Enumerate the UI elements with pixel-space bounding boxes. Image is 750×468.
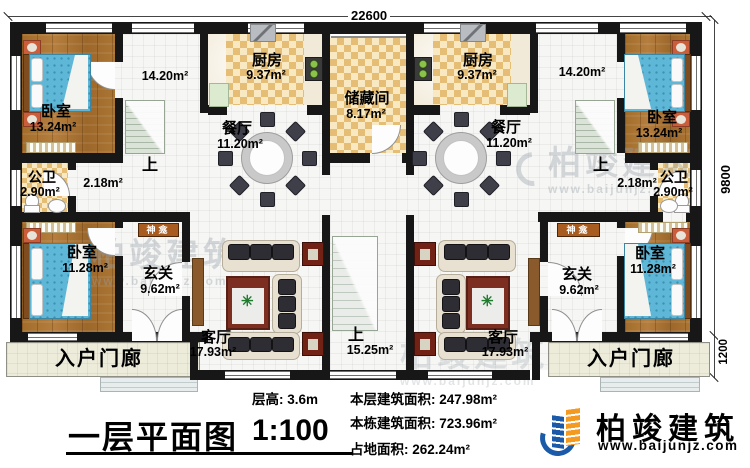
wall	[68, 196, 76, 212]
room-name-bedroom-bl: 卧室	[67, 245, 97, 262]
bedside-mat	[672, 40, 690, 55]
sofa-cushion	[488, 244, 510, 260]
wall	[322, 153, 370, 163]
room-name-bedroom-tr: 卧室	[647, 110, 677, 127]
wall	[406, 215, 414, 380]
wall	[68, 163, 76, 170]
room-name-bath-r: 公卫	[660, 170, 688, 185]
plant: ✳	[241, 294, 254, 309]
window	[330, 371, 396, 379]
wall	[307, 105, 330, 115]
tv-cabinet	[528, 258, 540, 326]
floor-height-label: 层高: 3.6m	[252, 388, 318, 408]
room-area-bath-l: 2.90m²	[20, 186, 60, 200]
window-seat-hatch	[638, 142, 688, 153]
toilet-tank	[24, 205, 40, 213]
sofa-cushion	[444, 244, 466, 260]
room-area-bedroom-tr: 13.24m²	[636, 127, 683, 141]
sofa-cushion	[272, 244, 294, 260]
dining-chair	[218, 151, 233, 166]
room-area-bedroom-tl: 13.24m²	[30, 121, 77, 135]
bed-pillow	[31, 284, 43, 316]
wall	[650, 163, 658, 170]
brand-website: www.baijunjz.com	[598, 438, 739, 453]
room-area-hall-l: 2.18m²	[83, 177, 123, 191]
end-table	[302, 332, 324, 356]
bedside-mat	[23, 40, 41, 55]
sofa-cushion	[442, 279, 460, 295]
room-area-bath-r: 2.90m²	[653, 186, 693, 200]
bed-pillow	[671, 284, 683, 316]
window	[28, 333, 77, 341]
stairs-left-unit	[125, 100, 165, 154]
window	[11, 246, 21, 318]
wall	[182, 296, 190, 342]
room-area-kitchen-r: 9.37m²	[457, 69, 497, 83]
sink	[660, 199, 678, 213]
dining-chair	[260, 192, 275, 207]
wall	[182, 222, 190, 262]
room-name-foyer-r: 玄关	[562, 267, 592, 284]
drawing-scale: 1:100	[252, 414, 329, 448]
window	[620, 23, 686, 33]
end-table	[414, 332, 436, 356]
window	[132, 23, 194, 33]
window	[46, 23, 112, 33]
entry-steps-right	[600, 377, 700, 392]
floor-plan-page: { "dimensions": { "top": "22600", "right…	[0, 0, 750, 468]
sofa-cushion	[442, 313, 460, 329]
dimension-line-right	[714, 20, 715, 378]
window	[536, 23, 598, 33]
window	[11, 56, 21, 110]
window	[428, 371, 492, 379]
dining-chair	[454, 192, 469, 207]
wall	[115, 222, 123, 228]
room-area-stair-c: 15.25m²	[347, 344, 394, 358]
fridge	[209, 83, 229, 107]
dimension-top-value: 22600	[348, 8, 390, 23]
sofa-cushion	[278, 313, 296, 329]
sofa-cushion	[466, 244, 488, 260]
wall	[412, 105, 440, 115]
sofa-cushion	[278, 296, 296, 312]
stairs-right-unit	[575, 100, 615, 154]
sofa-cushion	[250, 244, 272, 260]
room-area-dining-r: 11.20m²	[486, 137, 532, 151]
building-area-label: 本栋建筑面积: 723.96m²	[350, 412, 497, 432]
wall	[115, 34, 123, 62]
window	[691, 56, 701, 110]
sofa-cushion	[228, 244, 250, 260]
entry-steps-left	[100, 377, 198, 392]
tv-cabinet	[192, 258, 204, 326]
title-underline	[66, 452, 352, 455]
room-area-bedroom-br: 11.28m²	[630, 263, 676, 277]
wall	[10, 22, 702, 34]
stove	[414, 57, 432, 81]
stair-up-label-r: 上	[593, 157, 609, 175]
plant: ✳	[481, 294, 494, 309]
dining-chair	[412, 151, 427, 166]
stair-up-label-c: 上	[348, 327, 364, 345]
floor-area-label: 本层建筑面积: 247.98m²	[350, 388, 497, 408]
sofa-cushion	[250, 337, 272, 352]
shrine-left: 神龛	[138, 223, 179, 237]
bedside-mat	[672, 228, 690, 243]
shrine-label: 神龛	[146, 226, 170, 235]
logo-building-blue	[552, 415, 564, 449]
room-name-dining-r: 餐厅	[491, 120, 521, 137]
room-name-dining-l: 餐厅	[222, 121, 252, 138]
stairs-center	[332, 236, 378, 331]
dimension-porch-value: 1200	[718, 336, 730, 368]
room-area-living-r: 17.93m²	[482, 346, 529, 360]
room-area-storage: 8.17m²	[346, 108, 386, 122]
shrine-right: 神龛	[557, 223, 600, 237]
bed-pillow	[31, 58, 43, 82]
wall	[530, 22, 538, 113]
room-name-bedroom-tl: 卧室	[41, 104, 71, 121]
dining-chair	[302, 151, 317, 166]
wall	[686, 212, 702, 222]
room-area-dining-l: 11.20m²	[217, 138, 263, 152]
wall	[540, 222, 548, 262]
room-area-living-l: 17.93m²	[190, 346, 237, 360]
range-hood	[460, 24, 486, 42]
shrine-label: 神龛	[566, 226, 590, 235]
window	[640, 333, 688, 341]
wall	[625, 153, 702, 163]
dimension-right-value: 9800	[718, 162, 733, 197]
room-name-porch-l: 入户门廊	[55, 348, 143, 370]
room-area-hall-r: 2.18m²	[617, 177, 657, 191]
wall	[617, 222, 625, 228]
wall	[200, 22, 208, 113]
window	[691, 246, 701, 318]
dining-table	[435, 132, 487, 184]
room-area-kitchen-l: 9.37m²	[246, 69, 286, 83]
window	[225, 371, 290, 379]
dining-chair	[260, 112, 275, 127]
sofa-cushion	[442, 296, 460, 312]
sofa-cushion	[272, 337, 294, 352]
end-table	[414, 242, 436, 266]
sofa-cushion	[278, 279, 296, 295]
stove	[305, 57, 323, 81]
bed-pillow	[671, 58, 683, 82]
wall	[10, 153, 123, 163]
room-name-bath-l: 公卫	[28, 170, 56, 185]
fridge	[507, 83, 527, 107]
room-area-stair-r: 14.20m²	[559, 66, 606, 80]
sofa-cushion	[444, 337, 466, 352]
room-area-bedroom-bl: 11.28m²	[62, 262, 108, 276]
logo-building-orange	[566, 408, 580, 446]
room-name-bedroom-br: 卧室	[635, 246, 665, 263]
room-area-stair-l: 14.20m²	[142, 70, 189, 84]
room-area-foyer-l: 9.62m²	[140, 283, 180, 297]
land-area-label: 占地面积: 262.24m²	[350, 438, 470, 458]
wall	[10, 212, 190, 222]
sink	[48, 199, 66, 213]
room-name-foyer-l: 玄关	[143, 266, 173, 283]
bed-pillow	[31, 248, 43, 280]
room-name-porch-r: 入户门廊	[587, 348, 675, 370]
wall	[538, 212, 663, 222]
room-area-foyer-r: 9.62m²	[559, 284, 599, 298]
window-seat-hatch	[26, 142, 76, 153]
bed-pillow	[671, 84, 683, 108]
dining-chair	[454, 112, 469, 127]
bedside-mat	[23, 228, 41, 243]
dining-chair	[496, 151, 511, 166]
stair-up-label-l: 上	[142, 157, 158, 175]
range-hood	[250, 24, 276, 42]
wall	[532, 342, 540, 380]
brand-logo-icon	[540, 406, 592, 462]
wall	[540, 296, 548, 342]
room-name-storage: 储藏间	[344, 91, 389, 108]
wall	[115, 98, 123, 155]
wall	[115, 256, 123, 332]
end-table	[302, 242, 324, 266]
